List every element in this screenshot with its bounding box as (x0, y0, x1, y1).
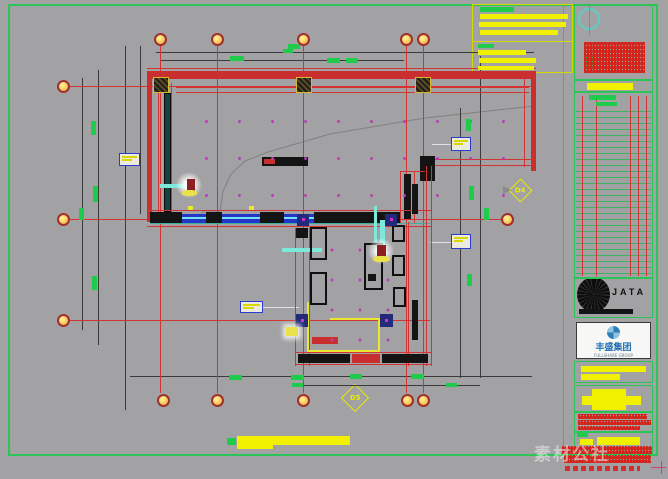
window-block (222, 214, 260, 223)
dimension-text (350, 374, 362, 379)
black-fill (296, 228, 308, 238)
title-block-bar (587, 83, 633, 90)
navy-column-block (385, 214, 397, 226)
grid-bubble (417, 394, 430, 407)
revision-table-column (646, 96, 647, 276)
yellow-wall-line (307, 350, 380, 352)
teal-wall-fill (164, 93, 171, 212)
downlight-grid (182, 96, 518, 208)
dimension-text (327, 58, 340, 63)
axis-or-wall-line (524, 79, 525, 167)
dimension-text (79, 208, 84, 220)
axis-or-wall-line (408, 222, 409, 366)
title-block-bar (577, 433, 588, 437)
grid-bubble (154, 33, 167, 46)
dimension-text (346, 58, 358, 63)
revision-table-column (582, 96, 583, 276)
notes-text-bar (480, 30, 558, 35)
grid-bubble (57, 314, 70, 327)
wall-fill (531, 71, 536, 171)
grid-bubble (400, 33, 413, 46)
notes-text-bar (478, 50, 526, 55)
wall-fill (352, 354, 380, 363)
axis-or-wall-line (158, 79, 159, 212)
window-block (182, 214, 206, 223)
axis-or-wall-line (176, 92, 529, 93)
grid-bubble (211, 394, 224, 407)
notes-text-bar (480, 14, 568, 19)
title-block-bar (596, 102, 617, 106)
axis-or-wall-line (295, 364, 432, 365)
title-block-bar (579, 309, 633, 314)
notes-text-bar (479, 22, 566, 27)
yellow-text-bar (237, 436, 350, 445)
wall-fill (147, 71, 536, 79)
column-marker (415, 77, 431, 93)
dimension-line (130, 376, 532, 377)
dimension-text (467, 274, 472, 286)
yellow-text-bar (237, 445, 273, 449)
title-block-bar (589, 95, 616, 100)
wall-fill (147, 71, 152, 222)
axis-or-wall-line (171, 83, 172, 212)
dimension-text (291, 375, 304, 380)
leader-line (263, 307, 299, 308)
revision-table-column (630, 96, 631, 276)
ceiling-tag (119, 153, 140, 166)
axis-or-wall-line (295, 352, 432, 353)
red-text-row (565, 466, 640, 471)
furniture-outline (392, 255, 405, 276)
column-marker (153, 77, 169, 93)
ceiling-tag (451, 234, 471, 249)
grid-bubble (401, 394, 414, 407)
dimension-text (93, 186, 98, 202)
dimension-line (161, 60, 404, 61)
revision-table-column (596, 96, 597, 276)
group-logo-name: 丰盛集团 (577, 343, 650, 353)
column-marker (296, 77, 312, 93)
notes-text-bar (479, 58, 536, 63)
axis-or-wall-line (147, 210, 432, 211)
dimension-text (446, 383, 457, 387)
revision-table-rows (576, 108, 651, 274)
ceiling-tag (240, 301, 263, 313)
dimension-line (125, 46, 126, 410)
group-logo-subtext: FULLSHARE GROUP (584, 354, 642, 359)
furniture-outline (310, 227, 327, 260)
watermark-text: 素材公社 (534, 440, 668, 465)
title-block-bar (581, 374, 620, 380)
black-fill (382, 354, 428, 363)
dimension-line (82, 78, 83, 330)
navy-column-block (297, 214, 309, 226)
dimension-line (98, 70, 99, 345)
notes-text-bar (478, 44, 494, 48)
cad-sheet: D4 D5 JATA 丰盛集团 FULLSHARE GROUP 素材公社 (0, 0, 668, 479)
corner-mark (651, 467, 666, 468)
title-block-bar (589, 5, 590, 36)
grid-bubble (417, 33, 430, 46)
dimension-text (469, 186, 474, 200)
group-logo-box: 丰盛集团 FULLSHARE GROUP (576, 322, 651, 359)
dimension-text (229, 375, 242, 380)
red-stamp-block (584, 42, 645, 73)
furniture-outline (310, 272, 327, 305)
red-stamp-block (578, 426, 640, 430)
dimension-text (411, 374, 424, 379)
ceiling-tag (451, 137, 471, 151)
red-stamp-block (578, 420, 651, 425)
grid-bubble (297, 33, 310, 46)
dimension-text (283, 49, 293, 53)
elevation-diamond-bottom-label: D5 (350, 394, 361, 402)
dimension-text (484, 208, 489, 220)
leader-line (430, 242, 452, 243)
grid-bubble (57, 80, 70, 93)
axis-or-wall-line (147, 226, 432, 227)
furniture-outline (392, 225, 405, 242)
notes-text-bar (480, 7, 514, 12)
grid-bubble (297, 394, 310, 407)
navy-column-block (380, 314, 393, 327)
dimension-line (140, 46, 141, 214)
dimension-text (292, 383, 303, 387)
title-block-bar (581, 366, 646, 372)
axis-or-wall-line (176, 87, 529, 88)
green-text-bar (227, 438, 236, 445)
red-stamp-block (578, 414, 647, 419)
black-fill (412, 300, 418, 340)
group-logo-glyph-icon (607, 326, 620, 339)
fixture-base (373, 256, 390, 262)
dimension-text (91, 121, 96, 135)
title-block-bar (582, 396, 641, 405)
general-notes-divider (472, 41, 573, 42)
fixture-base (182, 190, 197, 196)
wall-marker-highlight (286, 327, 298, 336)
black-fill (298, 354, 350, 363)
grid-bubble (57, 213, 70, 226)
grid-bubble (211, 33, 224, 46)
dimension-text (230, 56, 244, 61)
notes-text-bar (478, 66, 534, 70)
dimension-text (466, 119, 471, 131)
dimension-text (92, 276, 97, 290)
furniture-outline (393, 287, 406, 307)
revision-table-column (638, 96, 639, 276)
navy-column-block (296, 314, 308, 327)
grid-bubble (157, 394, 170, 407)
yellow-wall-line (307, 302, 309, 352)
grid-bubble (501, 213, 514, 226)
